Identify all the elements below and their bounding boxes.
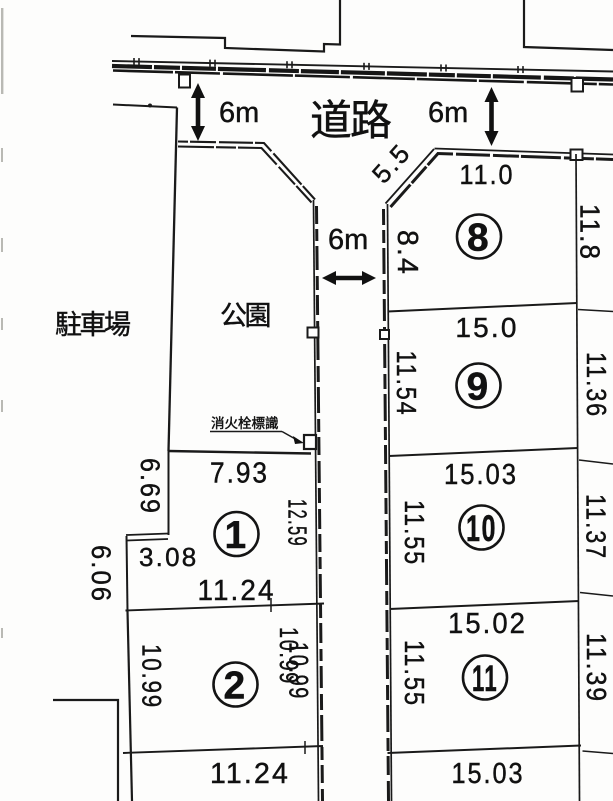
svg-text:11.36: 11.36 xyxy=(581,352,612,418)
svg-text:11.8: 11.8 xyxy=(575,204,606,261)
svg-text:2: 2 xyxy=(224,665,248,708)
svg-text:8.4: 8.4 xyxy=(391,230,423,276)
svg-text:10.99: 10.99 xyxy=(283,642,313,700)
svg-text:11.55: 11.55 xyxy=(399,500,430,566)
svg-text:駐車場: 駐車場 xyxy=(55,310,130,340)
svg-text:15.02: 15.02 xyxy=(448,608,527,640)
svg-text:11.55: 11.55 xyxy=(399,640,430,707)
svg-text:10.99: 10.99 xyxy=(136,644,166,709)
svg-text:15.03: 15.03 xyxy=(444,459,518,491)
svg-text:7.93: 7.93 xyxy=(210,458,269,490)
svg-text:10: 10 xyxy=(466,508,497,549)
svg-text:6m: 6m xyxy=(428,97,468,129)
svg-text:6.69: 6.69 xyxy=(135,458,165,515)
svg-text:6m: 6m xyxy=(328,224,368,256)
svg-text:15.03: 15.03 xyxy=(452,758,525,790)
svg-text:11: 11 xyxy=(472,658,498,699)
svg-text:11.37: 11.37 xyxy=(581,494,612,560)
svg-text:公園: 公園 xyxy=(220,301,269,331)
svg-text:6m: 6m xyxy=(219,97,259,129)
svg-text:11.24: 11.24 xyxy=(210,758,290,790)
svg-text:11.54: 11.54 xyxy=(391,351,422,417)
svg-text:11.0: 11.0 xyxy=(460,159,515,190)
svg-text:11.24: 11.24 xyxy=(198,575,276,607)
svg-text:11.39: 11.39 xyxy=(581,633,612,703)
svg-text:1: 1 xyxy=(225,514,249,557)
svg-text:8: 8 xyxy=(467,217,491,260)
svg-text:12.59: 12.59 xyxy=(283,499,313,547)
svg-text:消火栓標識: 消火栓標識 xyxy=(211,416,279,431)
svg-text:6.06: 6.06 xyxy=(86,545,116,603)
svg-text:3.08: 3.08 xyxy=(139,542,198,572)
svg-text:9: 9 xyxy=(467,366,491,409)
svg-text:15.0: 15.0 xyxy=(455,312,518,343)
svg-text:道路: 道路 xyxy=(310,97,391,144)
